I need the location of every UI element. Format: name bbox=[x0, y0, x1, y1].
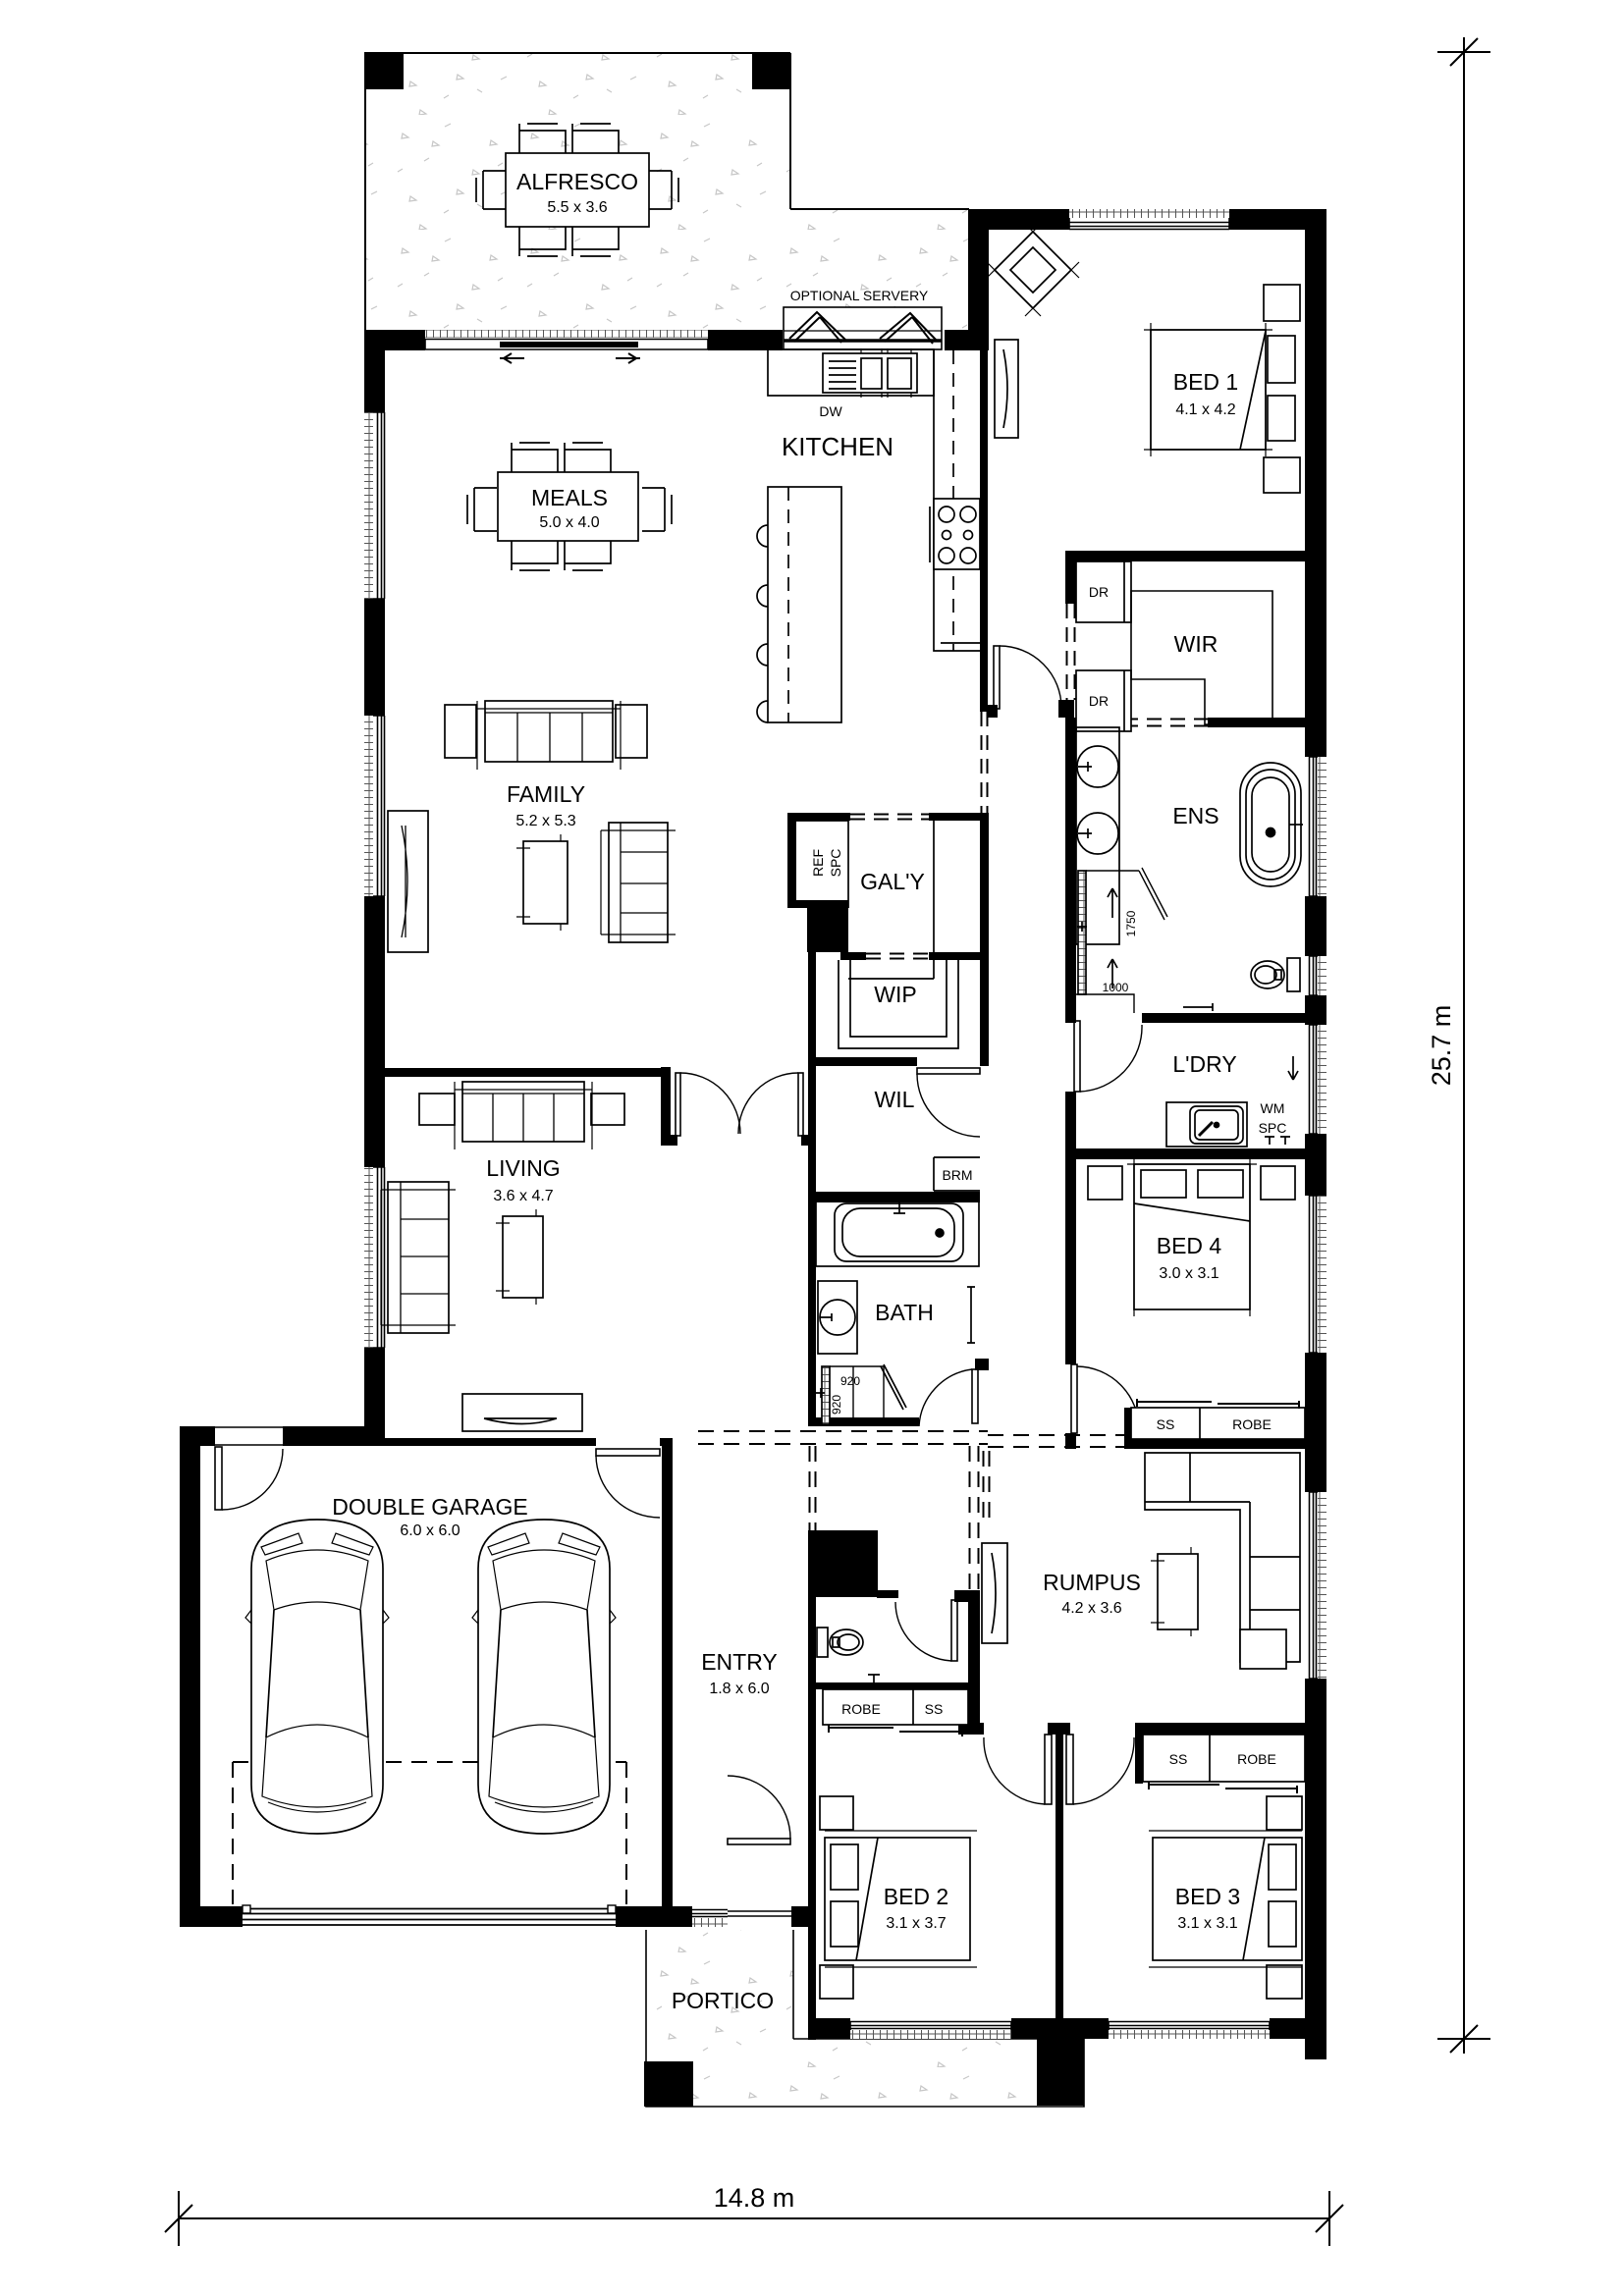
svg-text:920: 920 bbox=[830, 1395, 843, 1415]
svg-text:KITCHEN: KITCHEN bbox=[782, 432, 893, 461]
svg-text:3.6 x 4.7: 3.6 x 4.7 bbox=[493, 1188, 553, 1204]
svg-text:BED 3: BED 3 bbox=[1175, 1884, 1240, 1909]
svg-text:L'DRY: L'DRY bbox=[1172, 1051, 1236, 1077]
svg-text:14.8 m: 14.8 m bbox=[714, 2183, 795, 2213]
svg-text:LIVING: LIVING bbox=[486, 1155, 560, 1181]
svg-text:4.1 x 4.2: 4.1 x 4.2 bbox=[1175, 401, 1235, 418]
svg-text:SS: SS bbox=[1169, 1751, 1188, 1767]
svg-text:GAL'Y: GAL'Y bbox=[860, 869, 925, 894]
svg-text:REF: REF bbox=[810, 849, 826, 877]
svg-text:1750: 1750 bbox=[1124, 910, 1138, 936]
svg-text:WIP: WIP bbox=[874, 982, 916, 1007]
svg-text:DOUBLE GARAGE: DOUBLE GARAGE bbox=[332, 1494, 527, 1520]
svg-text:25.7 m: 25.7 m bbox=[1427, 1005, 1456, 1087]
svg-text:920: 920 bbox=[840, 1374, 860, 1388]
svg-text:1.8 x 6.0: 1.8 x 6.0 bbox=[709, 1681, 769, 1697]
svg-text:SS: SS bbox=[1157, 1416, 1175, 1432]
svg-text:SS: SS bbox=[925, 1701, 944, 1717]
svg-text:SPC: SPC bbox=[828, 849, 843, 878]
svg-text:BATH: BATH bbox=[875, 1300, 934, 1325]
svg-text:ROBE: ROBE bbox=[1237, 1751, 1276, 1767]
svg-text:PORTICO: PORTICO bbox=[672, 1988, 774, 2013]
svg-text:MEALS: MEALS bbox=[531, 485, 608, 510]
svg-text:WIL: WIL bbox=[875, 1087, 915, 1112]
svg-text:ROBE: ROBE bbox=[841, 1701, 881, 1717]
svg-text:ENS: ENS bbox=[1172, 803, 1218, 828]
svg-text:5.5 x 3.6: 5.5 x 3.6 bbox=[547, 199, 607, 216]
svg-text:DR: DR bbox=[1089, 584, 1109, 600]
svg-text:ALFRESCO: ALFRESCO bbox=[516, 169, 638, 194]
svg-text:DW: DW bbox=[819, 403, 842, 419]
svg-text:5.2 x 5.3: 5.2 x 5.3 bbox=[515, 813, 575, 829]
svg-text:WM: WM bbox=[1261, 1100, 1285, 1116]
svg-text:6.0 x 6.0: 6.0 x 6.0 bbox=[400, 1522, 460, 1539]
svg-text:4.2 x 3.6: 4.2 x 3.6 bbox=[1061, 1600, 1121, 1617]
svg-text:FAMILY: FAMILY bbox=[507, 781, 585, 807]
svg-text:BED 4: BED 4 bbox=[1157, 1233, 1222, 1258]
svg-text:5.0 x 4.0: 5.0 x 4.0 bbox=[539, 514, 599, 531]
svg-text:ENTRY: ENTRY bbox=[701, 1649, 778, 1675]
svg-text:BED 2: BED 2 bbox=[884, 1884, 948, 1909]
svg-text:WIR: WIR bbox=[1174, 631, 1218, 657]
svg-text:RUMPUS: RUMPUS bbox=[1043, 1570, 1141, 1595]
svg-text:3.1 x 3.1: 3.1 x 3.1 bbox=[1177, 1915, 1237, 1932]
svg-text:BED 1: BED 1 bbox=[1173, 369, 1238, 395]
svg-text:OPTIONAL SERVERY: OPTIONAL SERVERY bbox=[790, 288, 929, 303]
svg-text:3.0 x 3.1: 3.0 x 3.1 bbox=[1159, 1265, 1218, 1282]
svg-text:1000: 1000 bbox=[1103, 981, 1129, 994]
svg-text:SPC: SPC bbox=[1259, 1120, 1287, 1136]
svg-text:BRM: BRM bbox=[942, 1167, 972, 1183]
svg-text:ROBE: ROBE bbox=[1232, 1416, 1272, 1432]
svg-text:DR: DR bbox=[1089, 693, 1109, 709]
svg-text:3.1 x 3.7: 3.1 x 3.7 bbox=[886, 1915, 946, 1932]
